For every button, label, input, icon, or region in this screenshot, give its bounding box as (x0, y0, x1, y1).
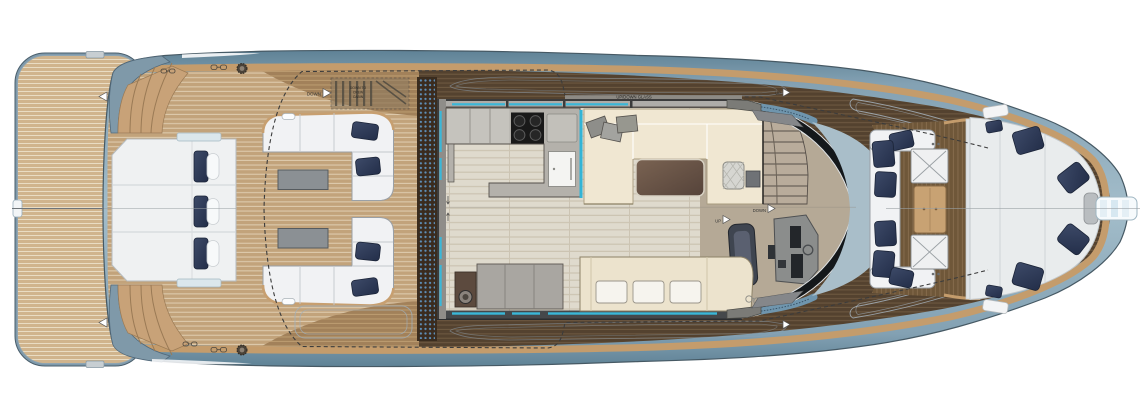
svg-text:DOWN: DOWN (307, 92, 321, 97)
svg-text:DOWN: DOWN (753, 208, 766, 213)
svg-text:UP: UP (775, 91, 781, 96)
svg-text:UP/DOWN GLASS: UP/DOWN GLASS (616, 95, 652, 100)
svg-text:CREW: CREW (353, 91, 364, 95)
svg-text:UP: UP (715, 219, 721, 224)
svg-text:DOWN TO: DOWN TO (350, 86, 367, 90)
svg-text:CABIN: CABIN (353, 95, 364, 99)
